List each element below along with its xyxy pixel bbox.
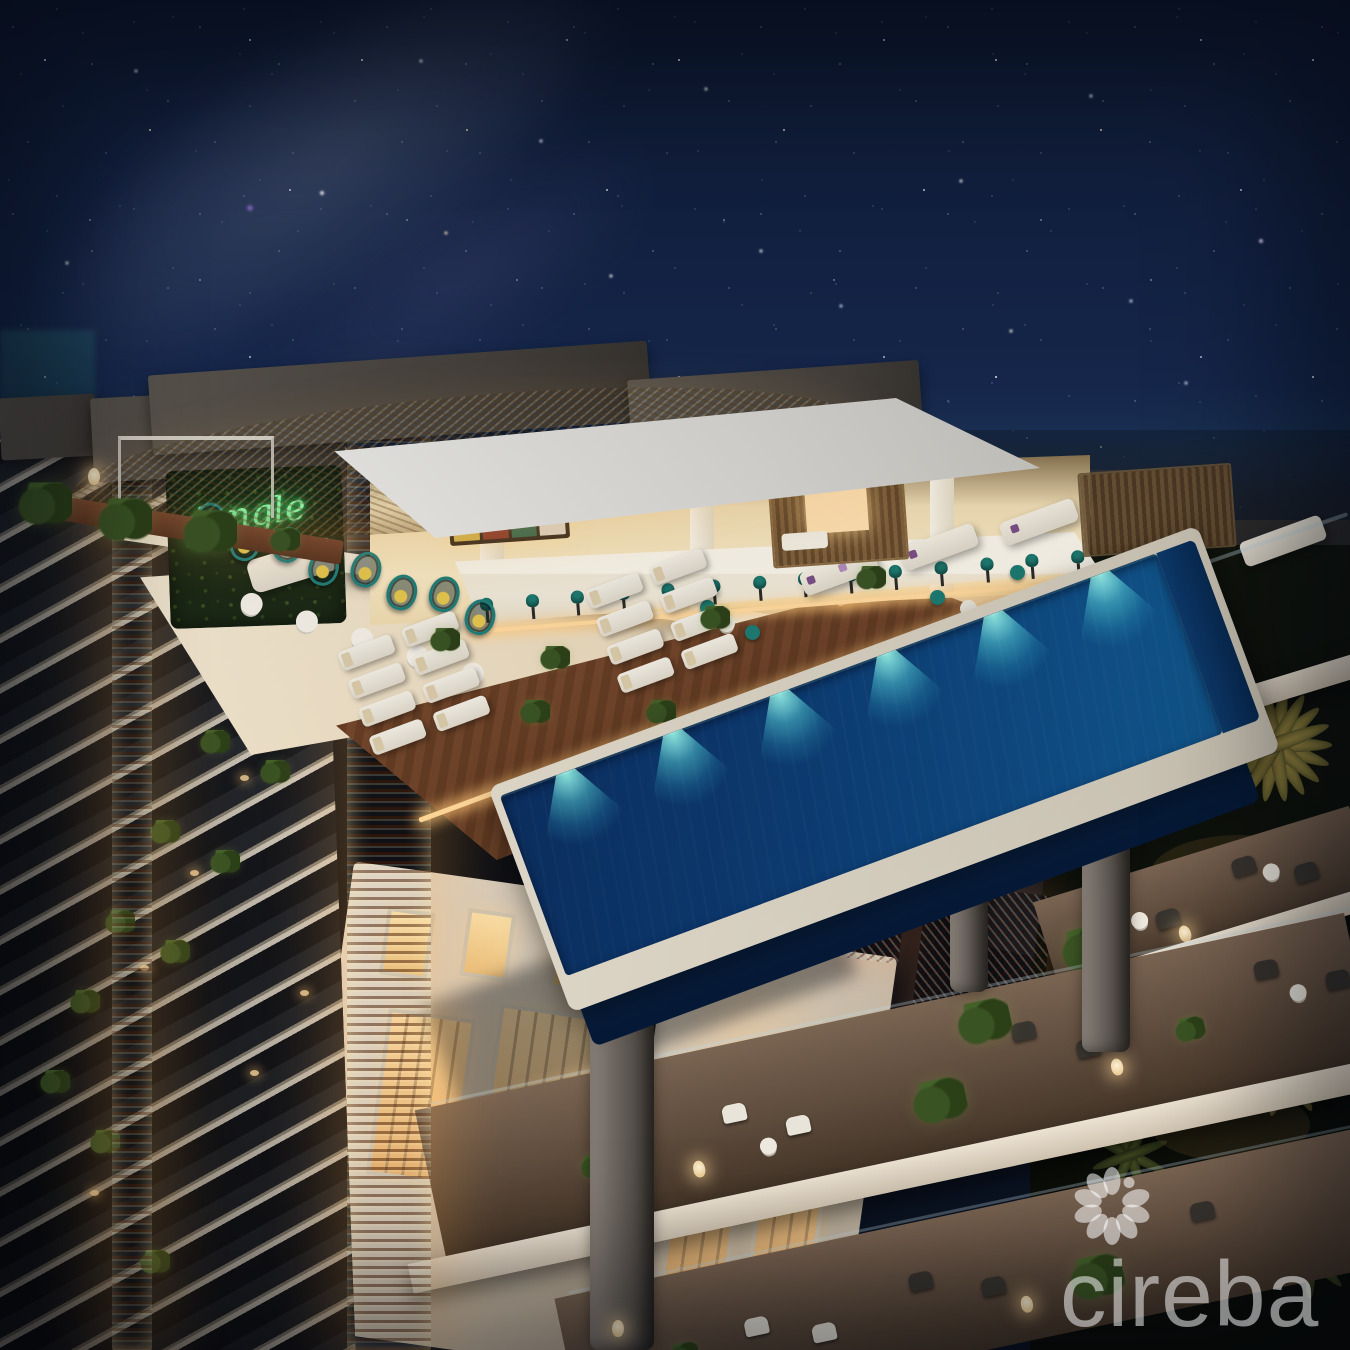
peacock-chair [382,571,421,614]
planter [430,628,460,652]
bar-stool [570,590,587,617]
cireba-flower-icon [1066,1160,1158,1252]
roof-plant [270,528,300,552]
roof-plant [18,482,72,525]
cabana-interior-glow [804,488,869,534]
peacock-chair [460,595,499,638]
watermark: cireba [1036,1156,1350,1350]
peacock-chair [425,573,464,616]
roof-plant [98,498,152,541]
roof-plant [183,510,237,553]
lantern [88,468,100,485]
night-rendering-luxury-condo: jungle [0,0,1350,1350]
watermark-text: cireba [1060,1250,1319,1338]
wing-roof-garden [0,420,355,570]
